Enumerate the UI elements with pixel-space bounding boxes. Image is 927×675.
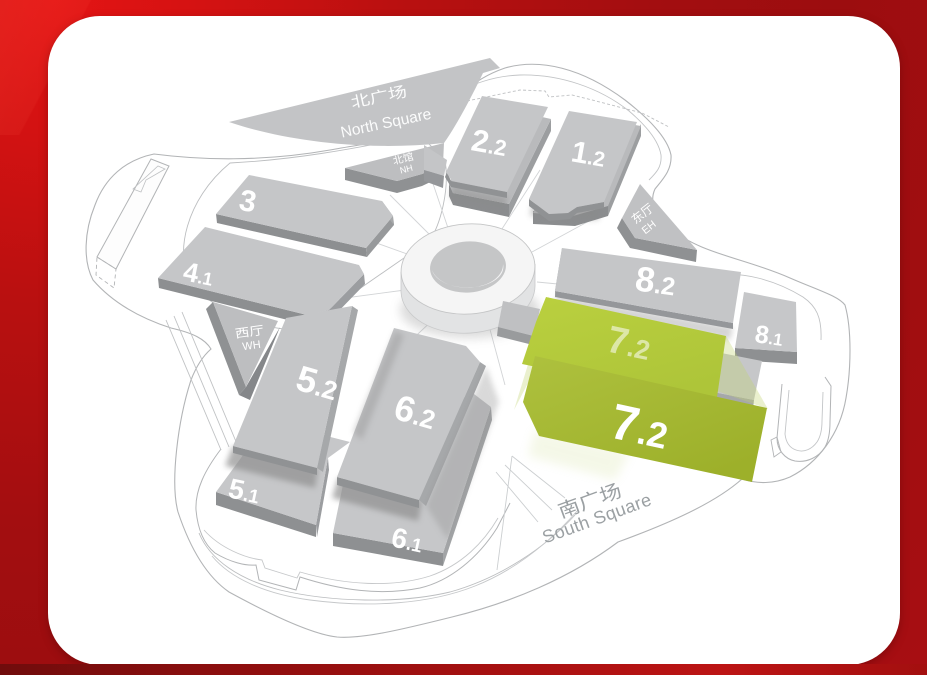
svg-text:WH: WH	[242, 339, 262, 353]
